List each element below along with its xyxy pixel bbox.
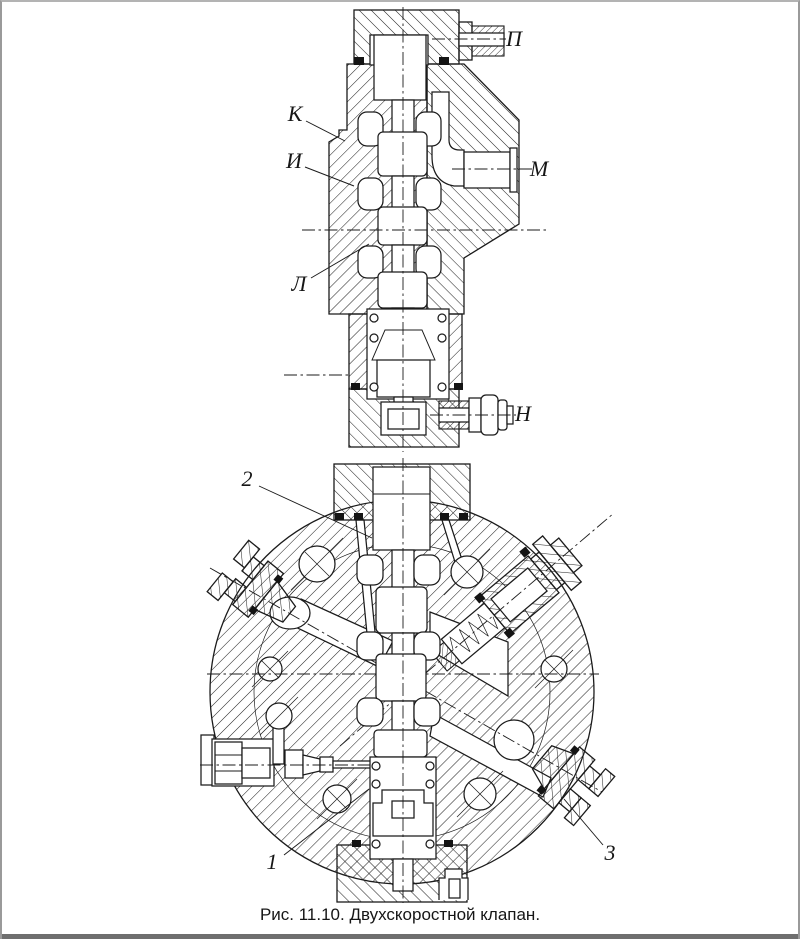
part-label-m: М	[530, 158, 548, 180]
bottom-border-bar	[2, 934, 798, 939]
item-label-1: 1	[267, 851, 278, 873]
part-label-n: Н	[515, 403, 531, 425]
part-label-p: П	[506, 28, 522, 50]
part-label-i: И	[286, 150, 302, 172]
figure-page: П К И М Л Н 2 1 3 Рис. 11.10. Двухскорос…	[0, 0, 800, 939]
valve-technical-drawing	[2, 2, 800, 905]
lower-section-view	[200, 458, 615, 903]
upper-section-view	[284, 7, 547, 452]
item-label-2: 2	[242, 468, 253, 490]
port-n-fitting	[430, 395, 516, 435]
part-label-l: Л	[292, 273, 307, 295]
part-label-k: К	[288, 103, 303, 125]
figure-caption: Рис. 11.10. Двухскоростной клапан.	[2, 905, 798, 925]
item-label-3: 3	[605, 842, 616, 864]
